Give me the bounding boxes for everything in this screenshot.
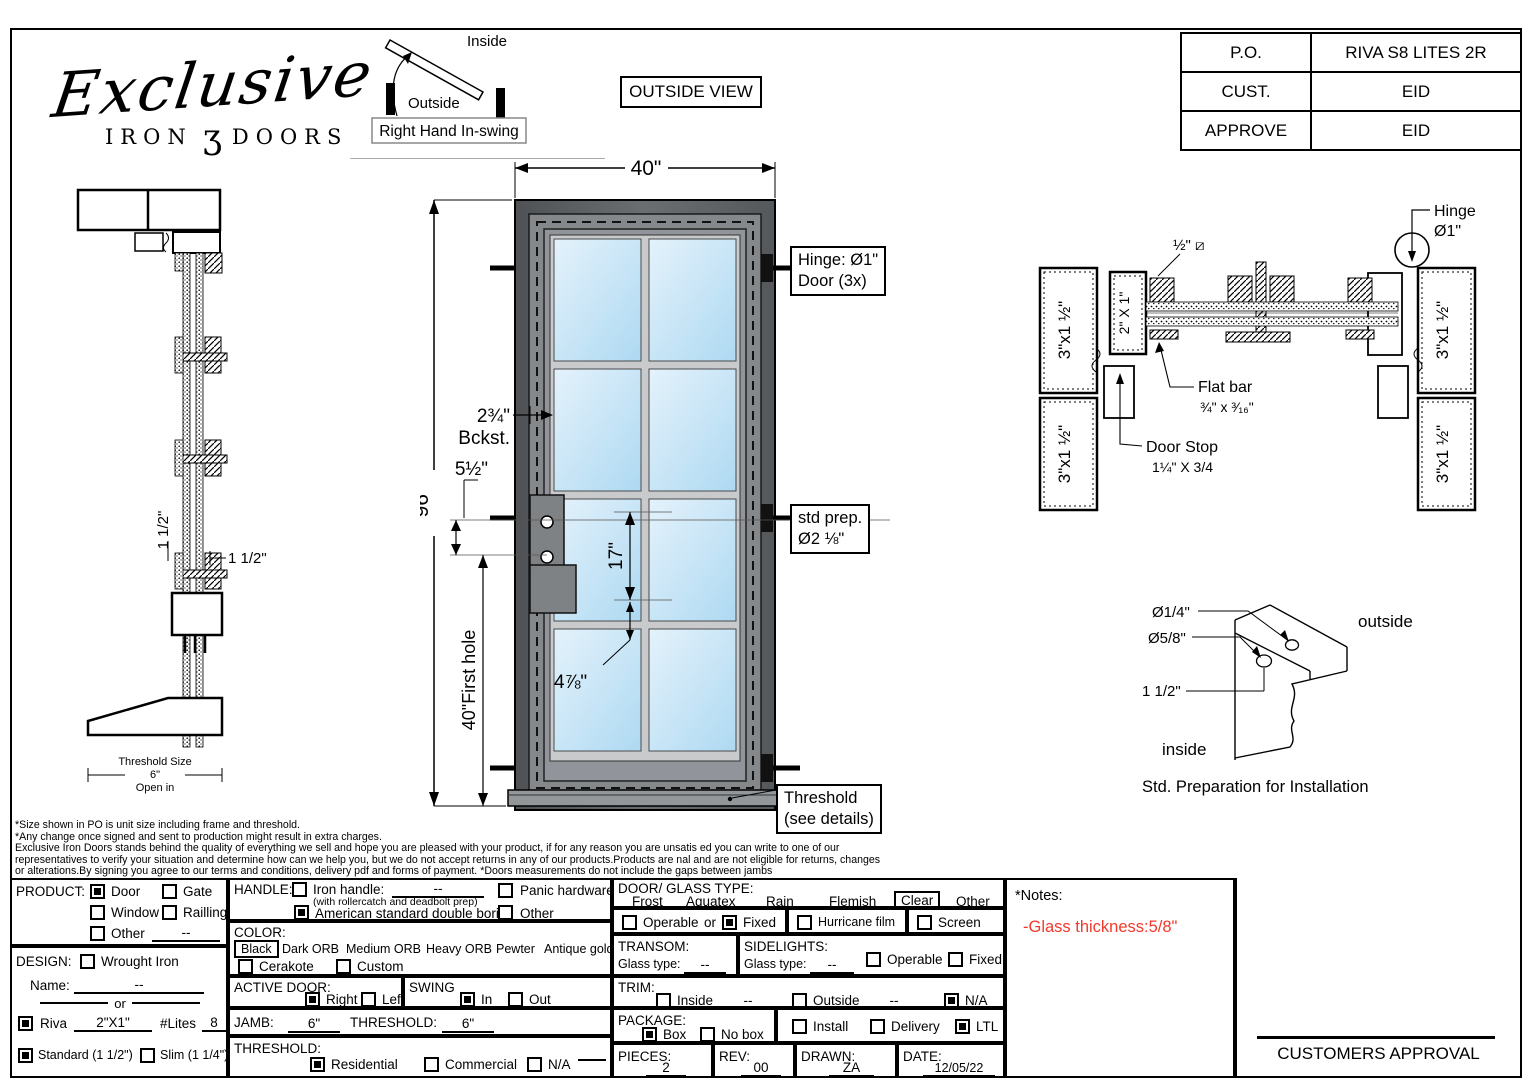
product-door-label: Door <box>111 884 140 899</box>
checkbox-trim-na[interactable] <box>944 993 959 1008</box>
riva-cell: Riva 2"X1" #Lites 8 Standard (1 1/2") Sl… <box>10 1004 228 1078</box>
checkbox-product-other[interactable] <box>90 926 105 941</box>
frame-tube-right-top: 3"x1 ½" <box>1418 268 1475 393</box>
design-name-label: Name: <box>30 978 70 993</box>
checkbox-handle-other[interactable] <box>498 905 513 920</box>
checkbox-install[interactable] <box>792 1019 807 1034</box>
design-name-field[interactable]: -- <box>74 978 204 994</box>
po-table: P.O. RIVA S8 LITES 2R CUST. EID APPROVE … <box>1180 32 1522 151</box>
checkbox-trim-outside[interactable] <box>792 993 807 1008</box>
fixed-label: Fixed <box>743 915 776 930</box>
color-antique-gold[interactable]: Antique gold <box>544 942 614 956</box>
delivery-cell: Install Delivery LTL <box>776 1008 1005 1043</box>
operable-or-label: or <box>704 915 716 930</box>
sidelights-operable-label: Operable <box>887 952 943 967</box>
checkbox-delivery[interactable] <box>870 1019 885 1034</box>
checkbox-operable[interactable] <box>622 915 637 930</box>
package-label: PACKAGE: <box>618 1013 686 1028</box>
lites-label: #Lites <box>160 1016 196 1031</box>
checkbox-left[interactable] <box>361 992 376 1007</box>
transom-cell: TRANSOM: Glass type: -- <box>612 934 738 976</box>
glass-thickness-note: -Glass thickness:5/8" <box>1023 918 1177 937</box>
date-field[interactable]: 12/05/22 <box>923 1061 995 1077</box>
dim-40: 40" <box>631 157 662 180</box>
brand-ornament: ʒ <box>203 127 222 147</box>
checkbox-standard[interactable] <box>18 1048 33 1063</box>
product-railing-label: Railling <box>183 905 227 920</box>
checkbox-window[interactable] <box>90 905 105 920</box>
color-cell: COLOR: Black Dark ORB Medium ORB Heavy O… <box>228 921 612 976</box>
in-label: In <box>481 992 492 1007</box>
color-label: COLOR: <box>234 925 286 940</box>
checkbox-residential[interactable] <box>310 1057 325 1072</box>
threshold-callout: Threshold (see details) <box>776 784 882 834</box>
checkbox-slim[interactable] <box>140 1048 155 1063</box>
trim-inside-label: Inside <box>677 993 713 1008</box>
checkbox-cerakote[interactable] <box>238 959 253 974</box>
sidelights-cell: SIDELIGHTS: Glass type: -- Operable Fixe… <box>738 934 1005 976</box>
outside-view-label: OUTSIDE VIEW <box>620 76 762 108</box>
svg-text:3"x1 ½": 3"x1 ½" <box>1055 425 1074 483</box>
jamb-field[interactable]: 6" <box>288 1017 340 1033</box>
svg-text:3"x1 ½": 3"x1 ½" <box>1433 301 1452 359</box>
checkbox-out[interactable] <box>508 992 523 1007</box>
swing-outside-label: Outside <box>408 95 460 112</box>
svg-text:2" X 1": 2" X 1" <box>1116 292 1132 335</box>
svg-text:¾" x ³⁄₁₆": ¾" x ³⁄₁₆" <box>1200 399 1254 415</box>
glass-aquatex[interactable]: Aquatex <box>686 894 736 909</box>
checkbox-ltl[interactable] <box>955 1019 970 1034</box>
checkbox-box[interactable] <box>642 1027 657 1042</box>
glass-frost[interactable]: Frost <box>632 894 663 909</box>
frame-tube-left-bottom: 3"x1 ½" <box>1040 398 1097 510</box>
handle-other-label: Other <box>520 906 554 921</box>
profile-threshold-value: 6" <box>150 769 160 781</box>
jamb-threshold-field[interactable]: 6" <box>442 1017 494 1033</box>
jamb-cell: JAMB: 6" THRESHOLD: 6" <box>228 1008 612 1036</box>
dim-4-7-8: 4⅞" <box>554 672 587 693</box>
dim-backset-label: Bckst. <box>458 428 510 449</box>
operable-label: Operable <box>643 915 699 930</box>
flat-bar-label: Flat bar ¾" x ³⁄₁₆" <box>1155 342 1254 415</box>
checkbox-door[interactable] <box>90 884 105 899</box>
brand-logo: Exclusive IRON ʒ DOORS <box>55 48 371 149</box>
signature-line[interactable] <box>1257 1036 1495 1039</box>
approve-label: APPROVE <box>1182 112 1312 149</box>
door-tube-2x1: 2" X 1" <box>1110 272 1146 354</box>
operable-fixed-cell: Operable or Fixed <box>612 908 787 934</box>
standard-label: Standard (1 1/2") <box>38 1048 133 1062</box>
dim-backset-value: 2¾" <box>477 406 510 427</box>
profile-threshold-size: Threshold Size <box>118 756 191 768</box>
hinge-section-symbol: Hinge Ø1" <box>1395 203 1476 267</box>
swing-label: SWING <box>409 980 455 995</box>
swing-inside-label: Inside <box>467 33 507 50</box>
residential-label: Residential <box>331 1057 398 1072</box>
install-dia-fiveeighths: Ø5/8" <box>1148 630 1186 647</box>
profile-dim-horizontal: 1 1/2" <box>228 550 267 567</box>
checkbox-american-boring[interactable] <box>294 905 309 920</box>
cerakote-label: Cerakote <box>259 959 314 974</box>
sidelights-glass-field[interactable]: -- <box>810 958 854 974</box>
glass-strip-bottom <box>1146 317 1398 326</box>
cust-label: CUST. <box>1182 73 1312 110</box>
checkbox-commercial[interactable] <box>424 1057 439 1072</box>
product-gate-label: Gate <box>183 884 212 899</box>
threshold-bar <box>508 790 782 806</box>
svg-text:3"x1 ½": 3"x1 ½" <box>1055 301 1074 359</box>
install-dim-onehalf: 1 1/2" <box>1142 683 1181 700</box>
delivery-label: Delivery <box>891 1019 940 1034</box>
glass-strip-top <box>1146 302 1398 311</box>
color-medium-orb[interactable]: Medium ORB <box>346 942 421 956</box>
swing-diagram: Inside Outside Right Hand In-swing <box>370 28 535 146</box>
svg-text:3"x1 ½": 3"x1 ½" <box>1433 425 1452 483</box>
color-dark-orb[interactable]: Dark ORB <box>282 942 339 956</box>
or-divider: or <box>40 996 200 1010</box>
hinge-callout: Hinge: Ø1" Door (3x) <box>790 246 886 296</box>
threshold-cell: THRESHOLD: Residential Commercial N/A <box>228 1036 612 1078</box>
dim-first-hole: 40"First hole <box>459 630 479 730</box>
trim-na-label: N/A <box>965 993 988 1008</box>
checkbox-in[interactable] <box>460 992 475 1007</box>
custom-color-label: Custom <box>357 959 404 974</box>
trim-label: TRIM: <box>618 980 655 995</box>
product-cell: PRODUCT: Door Gate Window Railling Other… <box>10 878 228 946</box>
hurricane-cell: Hurricane film <box>787 908 907 934</box>
checkbox-no-box[interactable] <box>700 1027 715 1042</box>
ltl-label: LTL <box>976 1019 998 1034</box>
checkbox-hurricane[interactable] <box>797 915 812 930</box>
install-prep-caption: Std. Preparation for Installation <box>1142 778 1402 797</box>
product-other-label: Other <box>111 926 145 941</box>
install-label: Install <box>813 1019 848 1034</box>
threshold-na-label: N/A <box>548 1057 571 1072</box>
swing-cell: SWING In Out <box>403 976 612 1008</box>
threshold-type-label: THRESHOLD: <box>234 1041 321 1056</box>
iron-handle-label: Iron handle: <box>313 882 384 897</box>
transom-label: TRANSOM: <box>618 939 689 954</box>
profile-threshold-openin: Open in <box>136 782 175 794</box>
jamb-label: JAMB: <box>234 1015 274 1030</box>
checkbox-panic[interactable] <box>498 883 513 898</box>
sidelights-label: SIDELIGHTS: <box>744 939 828 954</box>
checkbox-riva[interactable] <box>18 1016 33 1031</box>
half-square-label: ½" ⧄ <box>1173 237 1205 254</box>
glass-other[interactable]: Other <box>956 894 990 909</box>
panic-label: Panic hardware <box>520 883 614 898</box>
checkbox-right[interactable] <box>305 992 320 1007</box>
svg-text:Hinge: Hinge <box>1434 203 1476 220</box>
slim-label: Slim (1 1/4") <box>160 1048 228 1062</box>
swing-caption: Right Hand In-swing <box>379 123 519 140</box>
brand-word-iron: IRON <box>105 125 193 149</box>
hurricane-label: Hurricane film <box>818 915 895 929</box>
profile-dim-rotated: 1 1/2" <box>155 511 172 550</box>
left-label: Left <box>382 992 405 1007</box>
brand-script-text: Exclusive <box>48 37 378 132</box>
sidelights-glass-label: Glass type: <box>744 957 807 971</box>
door-tube-right <box>1368 273 1402 355</box>
disclaimer-text: *Size shown in PO is unit size including… <box>15 820 880 878</box>
svg-text:Ø1": Ø1" <box>1434 223 1461 240</box>
wrought-iron-label: Wrought Iron <box>101 954 179 969</box>
color-pewter[interactable]: Pewter <box>496 942 535 956</box>
drawn-field[interactable]: ZA <box>829 1061 874 1077</box>
no-box-label: No box <box>721 1027 764 1042</box>
frame-tube-right-bottom: 3"x1 ½" <box>1418 398 1475 510</box>
checkbox-threshold-na[interactable] <box>527 1057 542 1072</box>
door-stop-left <box>1104 366 1134 418</box>
checkbox-wrought-iron[interactable] <box>80 954 95 969</box>
lites-field[interactable]: 8 <box>202 1016 226 1032</box>
riva-label: Riva <box>40 1016 67 1031</box>
rev-field[interactable]: 00 <box>741 1061 781 1077</box>
std-prep-callout: std prep. Ø2 ⅛" <box>790 504 870 554</box>
glass-flemish[interactable]: Flemish <box>829 894 876 909</box>
install-outside-label: outside <box>1358 612 1413 631</box>
checkbox-screen[interactable] <box>917 915 932 930</box>
svg-text:Door Stop: Door Stop <box>1146 439 1218 456</box>
glass-type-cell: DOOR/ GLASS TYPE: Frost Aquatex Rain Fle… <box>612 878 1005 908</box>
checkbox-sidelights-fixed[interactable] <box>948 952 963 967</box>
trim-cell: TRIM: Inside -- Outside -- N/A <box>612 976 1005 1008</box>
dim-5-5: 5½" <box>455 459 488 480</box>
design-label: DESIGN: <box>16 954 72 969</box>
screen-cell: Screen <box>907 908 1005 934</box>
jamb-section-drawing: 3"x1 ½" 3"x1 ½" 3"x1 ½" 3"x1 ½" 2" X 1" <box>1030 190 1490 530</box>
threshold-na-field[interactable] <box>578 1059 606 1061</box>
commercial-label: Commercial <box>445 1057 517 1072</box>
checkbox-trim-inside[interactable] <box>656 993 671 1008</box>
pieces-field[interactable]: 2 <box>646 1061 686 1077</box>
install-inside-label: inside <box>1162 740 1206 759</box>
checkbox-fixed[interactable] <box>722 915 737 930</box>
out-label: Out <box>529 992 551 1007</box>
checkbox-railing[interactable] <box>162 905 177 920</box>
date-cell: DATE: 12/05/22 <box>897 1043 1005 1078</box>
package-cell: PACKAGE: Box No box <box>612 1008 776 1043</box>
po-label: P.O. <box>1182 34 1312 71</box>
po-value: RIVA S8 LITES 2R <box>1312 34 1520 71</box>
right-label: Right <box>326 992 358 1007</box>
product-window-label: Window <box>111 905 159 920</box>
brand-word-doors: DOORS <box>232 125 348 149</box>
frame-tube-left-top: 3"x1 ½" <box>1040 268 1097 393</box>
active-door-cell: ACTIVE DOOR: Right Left <box>228 976 403 1008</box>
pieces-cell: PIECES: 2 <box>612 1043 713 1078</box>
approval-cell: CUSTOMERS APPROVAL <box>1235 878 1520 1078</box>
handle-cell: HANDLE: Iron handle: -- (with rollercatc… <box>228 878 612 921</box>
approve-value: EID <box>1312 112 1520 149</box>
checkbox-gate[interactable] <box>162 884 177 899</box>
trim-outside-label: Outside <box>813 993 860 1008</box>
riva-size-field[interactable]: 2"X1" <box>74 1016 152 1032</box>
transom-glass-label: Glass type: <box>618 957 681 971</box>
svg-text:Flat bar: Flat bar <box>1198 379 1253 396</box>
svg-text:1¼" X 3/4: 1¼" X 3/4 <box>1152 459 1213 475</box>
door-stop-right <box>1378 366 1408 418</box>
jamb-threshold-label: THRESHOLD: <box>350 1015 437 1030</box>
glass-rain[interactable]: Rain <box>766 894 794 909</box>
checkbox-custom-color[interactable] <box>336 959 351 974</box>
cust-value: EID <box>1312 73 1520 110</box>
dim-17: 17" <box>606 542 627 570</box>
dim-96: 96" <box>420 487 433 518</box>
product-other-field[interactable]: -- <box>152 926 220 942</box>
side-profile-drawing: 1 1/2" 1 1/2" Threshold Size 6" Open in <box>70 185 310 800</box>
american-boring-label: American standard double boring <box>315 906 514 921</box>
transom-glass-field[interactable]: -- <box>684 958 726 974</box>
install-prep-drawing: Ø1/4" Ø5/8" 1 1/2" outside inside <box>1140 575 1530 810</box>
drawn-cell: DRAWN: ZA <box>795 1043 897 1078</box>
color-heavy-orb[interactable]: Heavy ORB <box>426 942 492 956</box>
checkbox-sidelights-operable[interactable] <box>866 952 881 967</box>
notes-label: *Notes: <box>1015 888 1063 904</box>
sidelights-fixed-label: Fixed <box>969 952 1002 967</box>
checkbox-iron-handle[interactable] <box>292 882 307 897</box>
install-dia-quarter: Ø1/4" <box>1152 604 1190 621</box>
handle-label: HANDLE: <box>234 882 293 897</box>
rev-cell: REV: 00 <box>713 1043 795 1078</box>
spec-sheet-page: Exclusive IRON ʒ DOORS Inside Outside Ri… <box>0 0 1536 1084</box>
box-label: Box <box>663 1027 686 1042</box>
color-black-selected[interactable]: Black <box>234 940 279 958</box>
product-label: PRODUCT: <box>16 884 85 899</box>
customers-approval-label: CUSTOMERS APPROVAL <box>1237 1044 1520 1064</box>
screen-label: Screen <box>938 915 981 930</box>
notes-cell: *Notes: -Glass thickness:5/8" <box>1005 878 1235 1078</box>
